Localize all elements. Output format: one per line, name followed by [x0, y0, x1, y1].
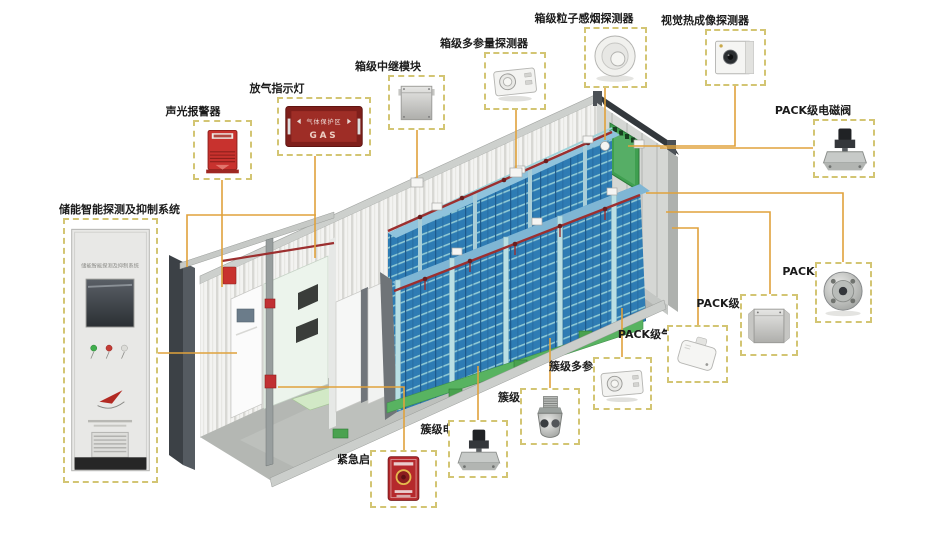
gas-release-indicator-box: 气体保护区 GAS: [277, 97, 371, 156]
gas-sign-zone-text: 气体保护区: [307, 118, 342, 126]
cabinet-panel-text: 储能智能探测及抑制系统: [81, 262, 139, 270]
box-relay-module-box: [388, 75, 445, 130]
mounted-relay-module: [411, 178, 423, 187]
system-cabinet-label: 储能智能探测及抑制系统: [59, 201, 180, 217]
cluster-multi-param-detector-box: [593, 357, 652, 410]
pack-solenoid-valve-box: [813, 119, 875, 178]
pack-relay-module-box: [740, 294, 798, 356]
diagram-stage: 储能智能探测及抑制系统 储能智能探测及抑制系统: [0, 0, 933, 538]
box-multi-param-detector-label: 箱级多参量探测器: [440, 35, 528, 51]
mounted-multi-param-detector: [510, 168, 522, 177]
box-multi-param-detector-icon: [486, 54, 544, 108]
box-relay-module-icon: [390, 77, 443, 128]
box-relay-module-label: 箱级中继模块: [355, 58, 421, 74]
pack-relay-module-icon: [742, 296, 796, 354]
box-smoke-detector-label: 箱级粒子感烟探测器: [535, 10, 634, 26]
cluster-solenoid-valve-box: [448, 420, 508, 478]
mounted-wall-siren: [223, 267, 236, 284]
emergency-start-button-icon: [372, 452, 435, 506]
gas-release-indicator-label: 放气指示灯: [250, 80, 305, 96]
system-cabinet-icon: 储能智能探测及抑制系统: [65, 220, 156, 481]
box-smoke-detector-box: [584, 27, 647, 88]
sound-light-alarm-icon: [195, 122, 250, 178]
cluster-nozzle-icon: [522, 390, 578, 443]
emergency-start-button-box: [370, 450, 437, 508]
pack-nozzle-icon: [817, 264, 870, 321]
thermal-imaging-detector-icon: [707, 31, 764, 84]
box-multi-param-detector-box: [484, 52, 546, 110]
gas-sign-gas-text: GAS: [310, 131, 339, 141]
mounted-emergency-button: [265, 375, 276, 388]
cluster-solenoid-valve-icon: [450, 422, 506, 476]
pack-gas-detector-icon: [669, 327, 726, 381]
pack-solenoid-valve-label: PACK级电磁阀: [775, 102, 851, 118]
pack-solenoid-valve-icon: [815, 121, 873, 176]
box-smoke-detector-icon: [586, 29, 645, 86]
pack-nozzle-box: [815, 262, 872, 323]
cluster-nozzle-box: [520, 388, 580, 445]
sound-light-alarm-label: 声光报警器: [166, 103, 221, 119]
thermal-imaging-detector-label: 视觉热成像探测器: [661, 12, 749, 28]
mounted-smoke-detector: [601, 142, 610, 151]
cluster-multi-param-detector-icon: [595, 359, 650, 408]
system-cabinet-box: 储能智能探测及抑制系统: [63, 218, 158, 483]
pack-gas-detector-box: [667, 325, 728, 383]
gas-release-indicator-icon: 气体保护区 GAS: [279, 99, 369, 154]
sound-light-alarm-box: [193, 120, 252, 180]
thermal-imaging-detector-box: [705, 29, 766, 86]
